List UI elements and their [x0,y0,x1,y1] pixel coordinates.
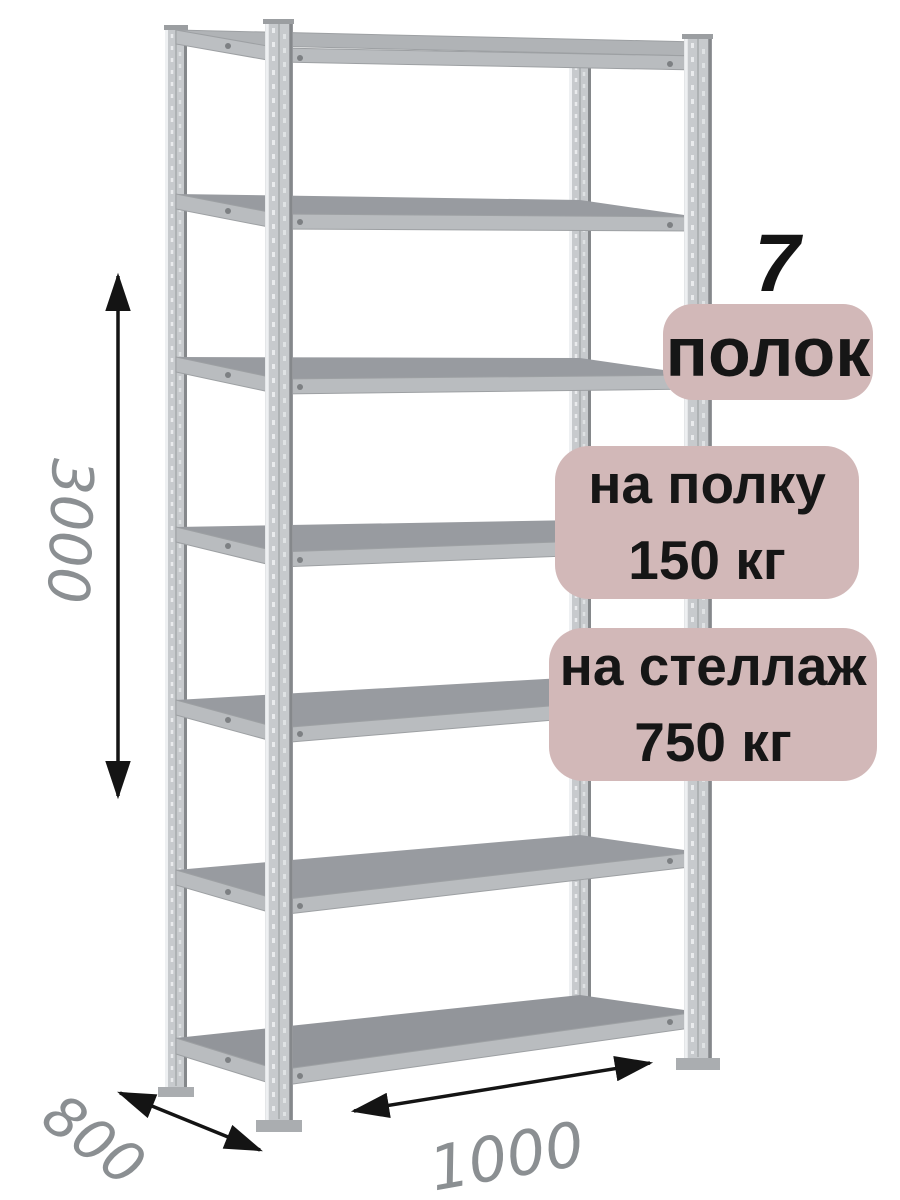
width-dimension-arrow [354,1063,650,1111]
product-image: 3000 800 1000 7 полок на полку 150 кг на… [0,0,900,1200]
shelf-1 [176,30,698,70]
shelf-3 [176,357,698,394]
shelf-2 [176,194,698,231]
per-shelf-load-label: на полку [588,447,826,523]
shelf-7 [176,995,698,1086]
per-rack-load-label: на стеллаж [560,629,867,705]
shelving-rack-illustration [0,0,900,1200]
shelf-count-badge-label: полок [666,304,871,401]
per-rack-load-badge: на стеллаж 750 кг [549,628,877,781]
shelf-count-badge: полок [663,304,873,400]
per-rack-load-value: 750 кг [634,705,791,781]
per-shelf-load-value: 150 кг [628,523,785,599]
shelf-6 [176,835,698,915]
shelf-count-number: 7 [754,223,800,305]
per-shelf-load-badge: на полку 150 кг [555,446,859,599]
height-dimension-label: 3000 [38,458,100,605]
